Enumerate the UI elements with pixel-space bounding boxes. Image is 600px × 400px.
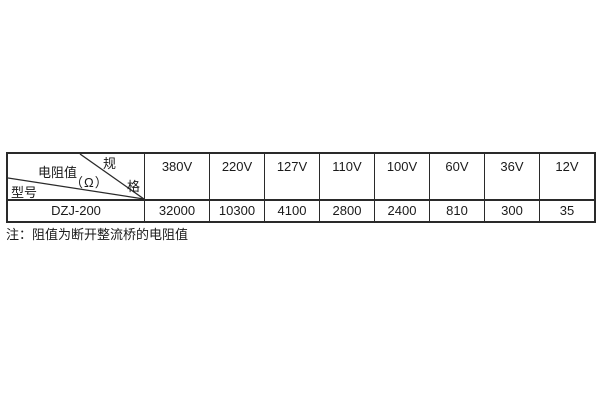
value-cell-380v: 32000 [144, 201, 209, 221]
page: 规 格 电阻值 （Ω） 型号 380V 220V 127V 110V 100V … [0, 0, 600, 400]
value-cell-220v: 10300 [209, 201, 264, 221]
table-data-row: DZJ-200 32000 10300 4100 2800 2400 810 3… [8, 201, 594, 221]
column-header-12v: 12V [539, 154, 594, 199]
resistance-unit-label: （Ω） [70, 176, 109, 189]
model-axis-label: 型号 [11, 186, 37, 199]
column-header-100v: 100V [374, 154, 429, 199]
value-cell-127v: 4100 [264, 201, 319, 221]
spec-label-bottom-char: 格 [127, 180, 140, 193]
column-header-110v: 110V [319, 154, 374, 199]
value-cell-36v: 300 [484, 201, 539, 221]
spec-table: 规 格 电阻值 （Ω） 型号 380V 220V 127V 110V 100V … [6, 152, 596, 223]
column-header-380v: 380V [144, 154, 209, 199]
column-header-60v: 60V [429, 154, 484, 199]
value-cell-100v: 2400 [374, 201, 429, 221]
value-cell-60v: 810 [429, 201, 484, 221]
diagonal-header-cell: 规 格 电阻值 （Ω） 型号 [8, 154, 144, 199]
value-cell-110v: 2800 [319, 201, 374, 221]
table-header-row: 规 格 电阻值 （Ω） 型号 380V 220V 127V 110V 100V … [8, 154, 594, 201]
spec-label-top-char: 规 [103, 157, 116, 170]
value-cell-12v: 35 [539, 201, 594, 221]
column-header-220v: 220V [209, 154, 264, 199]
column-header-36v: 36V [484, 154, 539, 199]
column-header-127v: 127V [264, 154, 319, 199]
model-name-cell: DZJ-200 [8, 201, 144, 221]
footnote: 注：阻值为断开整流桥的电阻值 [6, 227, 188, 242]
